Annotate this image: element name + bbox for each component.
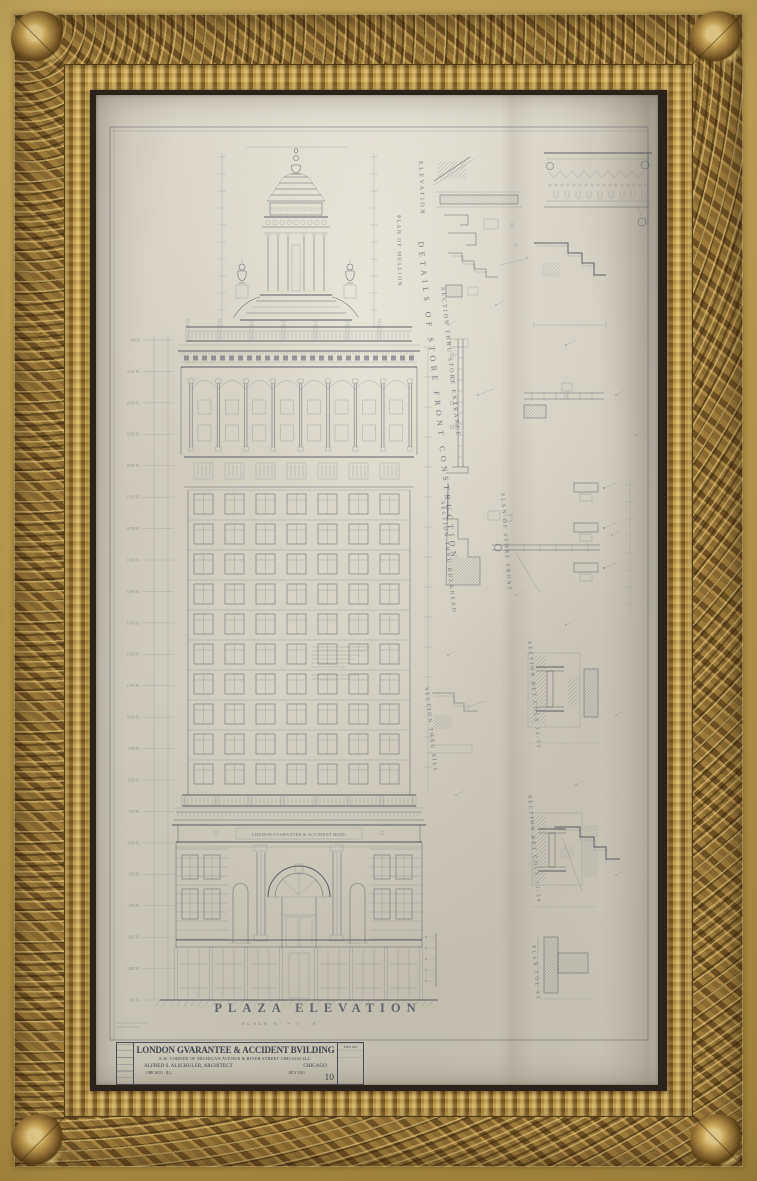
- file-box-label: FILE NO: [344, 1045, 357, 1049]
- diagonal-label: PLAN OF MULLION: [395, 215, 402, 287]
- date-line: JULY 1921: [288, 1071, 305, 1075]
- framed-drawing-photo: ROOF21ST FL20TH FL19TH FL18TH FL17TH FL1…: [0, 0, 757, 1181]
- svg-text:ROOF: ROOF: [130, 338, 140, 342]
- svg-text:LONDON GVARANTEE & ACCIDENT BL: LONDON GVARANTEE & ACCIDENT BLDG: [252, 832, 346, 837]
- title-block-stamp: [117, 1043, 134, 1084]
- svg-text:18TH FL: 18TH FL: [127, 464, 140, 468]
- svg-text:13TH FL: 13TH FL: [127, 621, 140, 625]
- svg-text:9TH FL: 9TH FL: [128, 747, 140, 751]
- svg-text:12TH FL: 12TH FL: [127, 653, 140, 657]
- title-block-main: LONDON GVARANTEE & ACCIDENT BVILDING S.W…: [134, 1043, 337, 1084]
- svg-text:5TH FL: 5TH FL: [128, 873, 140, 877]
- elevation-drawing: ROOF21ST FL20TH FL19TH FL18TH FL17TH FL1…: [96, 95, 658, 1085]
- drawing-sheet: ROOF21ST FL20TH FL19TH FL18TH FL17TH FL1…: [96, 95, 658, 1085]
- svg-text:10TH FL: 10TH FL: [127, 716, 140, 720]
- architect-city: CHICAGO: [303, 1063, 327, 1069]
- title-block-file-box: FILE NO: [337, 1043, 363, 1084]
- svg-text:7TH FL: 7TH FL: [128, 810, 140, 814]
- architect-name: ALFRED S. ALSCHULER, ARCHITECT: [144, 1063, 233, 1069]
- building-address: S.W. CORNER OF MICHIGAN AVENUE & RIVER S…: [134, 1056, 337, 1061]
- svg-text:17TH FL: 17TH FL: [127, 496, 140, 500]
- svg-text:21ST FL: 21ST FL: [127, 370, 140, 374]
- svg-text:19TH FL: 19TH FL: [127, 433, 140, 437]
- approval-scribble: [116, 1023, 148, 1027]
- svg-text:16TH FL: 16TH FL: [127, 527, 140, 531]
- svg-text:3RD FL: 3RD FL: [128, 936, 140, 940]
- svg-text:6TH FL: 6TH FL: [128, 841, 140, 845]
- office-line: CHICAGO · ILL.: [146, 1071, 173, 1075]
- svg-text:20TH FL: 20TH FL: [127, 401, 140, 405]
- svg-text:2ND FL: 2ND FL: [128, 967, 140, 971]
- svg-text:11TH FL: 11TH FL: [127, 684, 140, 688]
- building-name: LONDON GVARANTEE & ACCIDENT BVILDING: [134, 1045, 337, 1055]
- svg-text:1ST FL: 1ST FL: [129, 998, 140, 1002]
- sheet-number: 10: [325, 1073, 335, 1083]
- sheet-title: PLAZA ELEVATION: [206, 1001, 430, 1016]
- svg-text:4TH FL: 4TH FL: [128, 904, 140, 908]
- title-block: LONDON GVARANTEE & ACCIDENT BVILDING S.W…: [116, 1042, 364, 1085]
- svg-text:14TH FL: 14TH FL: [127, 590, 140, 594]
- svg-text:15TH FL: 15TH FL: [127, 558, 140, 562]
- svg-text:8TH FL: 8TH FL: [128, 778, 140, 782]
- sheet-scale-note: SCALE ⅛˝ = 1´- 0˝: [242, 1021, 322, 1026]
